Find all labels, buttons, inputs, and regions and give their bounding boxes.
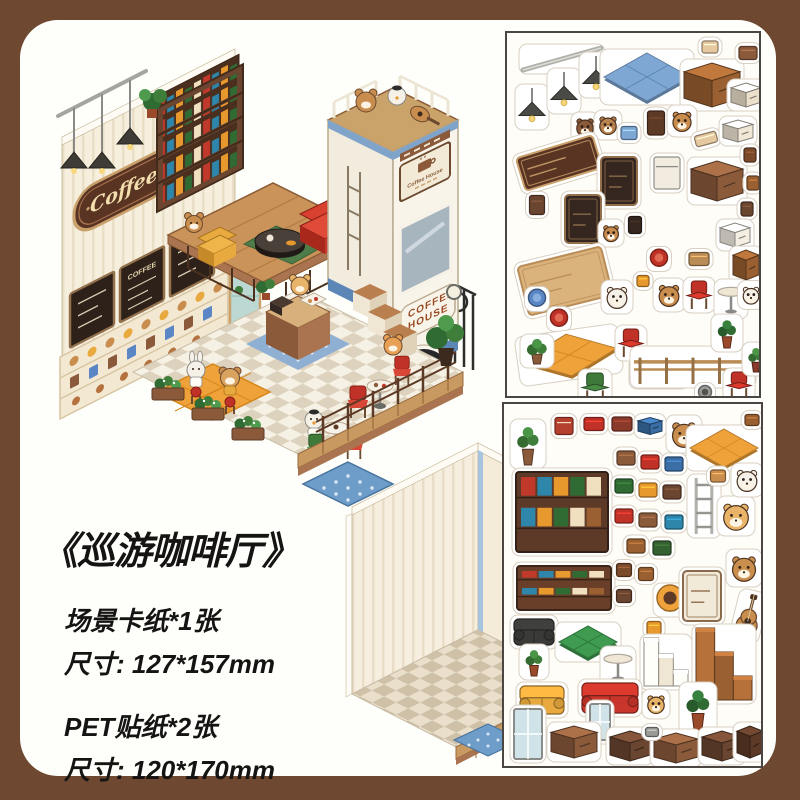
loft-coffee-table — [255, 229, 305, 258]
sticker-tv-console — [513, 562, 615, 614]
spec-pet-stickers: PET贴纸*2张 尺寸: 120*170mm — [64, 707, 370, 787]
sticker-book-sticker — [635, 479, 661, 501]
sticker-bun — [698, 37, 722, 57]
loft-bear — [185, 213, 204, 233]
sticker-bear-face — [598, 219, 624, 247]
sticker-wall-frame — [625, 213, 646, 238]
sticker-basket — [685, 249, 713, 270]
sticker-display-case — [729, 246, 759, 284]
sticker-red-stool — [647, 247, 672, 272]
sticker-book-sticker — [623, 535, 649, 557]
sticker-books-stack — [608, 413, 636, 435]
sticker-blue-stool — [525, 287, 550, 312]
sticker-jar — [740, 144, 759, 166]
sticker-book-sticker — [637, 451, 663, 473]
sticker-sheet-top — [505, 31, 761, 398]
sticker-bear-bun — [642, 689, 670, 719]
sticker-coffee-cup — [633, 272, 653, 291]
sticker-sheet-bottom — [502, 402, 763, 768]
sticker-coffee-sign — [511, 130, 607, 196]
sticker-green-chair — [578, 369, 612, 396]
sticker-book-sticker — [611, 475, 637, 497]
sticker-hanging-lamp — [515, 84, 549, 130]
duck-customer — [305, 410, 323, 438]
sticker-cabinet — [547, 722, 601, 762]
sticker-jar — [613, 560, 636, 581]
sticker-book-sticker — [661, 511, 687, 533]
spec-size: 尺寸: 127*157mm — [64, 644, 370, 681]
sticker-hanging-plant — [510, 419, 546, 469]
sticker-bear — [726, 549, 761, 587]
sticker-jar — [613, 586, 636, 607]
sticker-bear — [653, 278, 685, 312]
sticker-bento — [580, 414, 608, 435]
sticker-blue-crate — [617, 123, 641, 144]
sticker-potted-plant — [519, 644, 549, 680]
sticker-bowl — [642, 724, 663, 741]
sticker-cookie — [707, 466, 730, 486]
sticker-nightstand — [733, 722, 761, 762]
sticker-jar — [635, 564, 658, 585]
product-title: 《巡游咖啡厅》 — [40, 520, 370, 575]
sticker-rabbit — [601, 280, 633, 314]
sticker-book-sticker — [661, 453, 687, 475]
sticker-white-cat — [731, 463, 761, 497]
sticker-book-sticker — [649, 537, 675, 559]
spec-line: 场景卡纸*1张 — [64, 601, 370, 638]
sticker-snack-tray — [735, 43, 759, 64]
sticker-jar — [743, 172, 759, 194]
sticker-coffee-grinder — [644, 107, 669, 139]
sticker-blue-tray — [634, 414, 666, 439]
sticker-potted-plant — [742, 342, 759, 376]
roof-bear — [355, 89, 377, 112]
spec-size: 尺寸: 120*170mm — [64, 750, 370, 787]
sticker-book-sticker — [635, 509, 661, 531]
sticker-red-stool — [547, 307, 572, 332]
sticker-bear — [717, 496, 755, 536]
sticker-menu-poster — [679, 567, 725, 625]
sticker-snack — [741, 411, 761, 430]
product-text-block: 《巡游咖啡厅》 场景卡纸*1张 尺寸: 127*157mm PET贴纸*2张 尺… — [40, 520, 370, 787]
sticker-pet-bowl — [695, 383, 716, 397]
spec-scene-card: 场景卡纸*1张 尺寸: 127*157mm — [64, 601, 370, 681]
sticker-book-sticker — [613, 447, 639, 469]
sticker-book-sticker — [659, 481, 685, 503]
coffee-shop-scene: Coffee COFFEE — [48, 40, 478, 532]
sticker-hanging-lamp — [547, 68, 581, 114]
sticker-red-chair — [683, 277, 715, 313]
sticker-potted-plant — [711, 314, 743, 352]
blue-doormat — [303, 462, 393, 506]
sticker-tall-plant — [679, 682, 717, 734]
sticker-bookshelf — [512, 468, 612, 556]
sticker-book-sticker — [611, 505, 637, 527]
stairs-bear — [384, 335, 403, 356]
sticker-jar — [737, 198, 757, 220]
sticker-wall-frame — [551, 414, 577, 439]
sticker-white-stairs — [640, 634, 692, 690]
product-image: Coffee COFFEE — [0, 0, 800, 800]
sticker-duck — [738, 281, 760, 310]
sticker-glass-door — [510, 705, 546, 763]
sticker-wall-frame — [526, 192, 549, 219]
spec-line: PET贴纸*2张 — [64, 707, 370, 744]
sticker-bear-on-chair — [667, 105, 697, 137]
sticker-coffee-machine — [650, 153, 684, 193]
sticker-planter-box — [520, 334, 554, 368]
sticker-white-bench — [727, 79, 759, 111]
counter-bear — [290, 275, 311, 296]
headlight — [447, 285, 461, 299]
sticker-bread-box — [719, 116, 757, 146]
sticker-counter-cube — [687, 157, 747, 205]
